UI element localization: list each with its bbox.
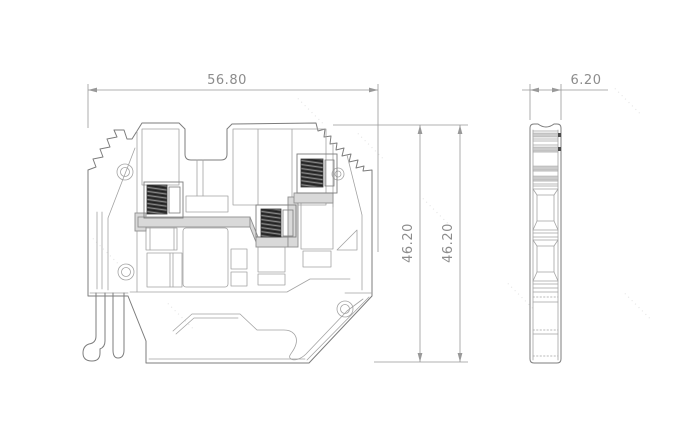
arrow-left	[530, 88, 539, 93]
screw-funnel-top	[533, 186, 558, 233]
mounting-hole	[118, 264, 134, 280]
dimension-height-label: 46.20	[401, 223, 416, 263]
left-tower-cavity	[142, 129, 179, 185]
watermark-text: ········	[163, 300, 198, 335]
clamp-screw-right	[297, 154, 337, 193]
watermark-text: ········	[293, 95, 328, 130]
watermark-text: ········	[88, 235, 123, 270]
dimension-width-label: 56.80	[207, 73, 247, 88]
technical-drawing-terminal-block: ········ ········ ········ ········ ····…	[0, 0, 680, 440]
center-shelf	[186, 196, 228, 212]
dimension-height-label: 46.20	[441, 223, 456, 263]
arrow-down	[418, 353, 423, 362]
mounting-hole	[117, 164, 133, 180]
center-cavity	[183, 228, 228, 287]
end-view	[530, 124, 561, 363]
clamp-screw-left	[144, 182, 183, 218]
end-view-bands	[533, 133, 561, 180]
arrow-down	[458, 353, 463, 362]
arrow-left	[88, 88, 97, 93]
base-channel-top	[130, 279, 350, 292]
arrow-up	[418, 125, 423, 134]
watermark-text: ········	[503, 280, 538, 315]
screw-thread	[301, 159, 323, 187]
screw-thread	[147, 185, 167, 214]
screw-funnel-bottom	[533, 237, 558, 284]
arrow-right	[369, 88, 378, 93]
end-view-outline	[530, 124, 561, 363]
din-rail-foot	[83, 293, 124, 361]
mounting-hole	[337, 301, 353, 317]
watermark-text: ········	[620, 290, 655, 325]
dimension-thickness-label: 6.20	[571, 73, 602, 88]
dimension-height-2: 46.20	[441, 125, 462, 362]
watermark-text: ········	[353, 130, 388, 165]
watermark-text: ········	[610, 85, 645, 120]
gusset-triangle-cutout	[337, 230, 357, 250]
end-view-lines	[533, 131, 558, 356]
side-view-internal-lines	[90, 129, 371, 360]
arrow-right	[552, 88, 561, 93]
screw-thread	[261, 209, 281, 237]
dimension-thickness: 6.20	[522, 73, 608, 120]
arrow-up	[458, 125, 463, 134]
base-ridge	[173, 299, 363, 360]
side-view	[83, 123, 372, 363]
